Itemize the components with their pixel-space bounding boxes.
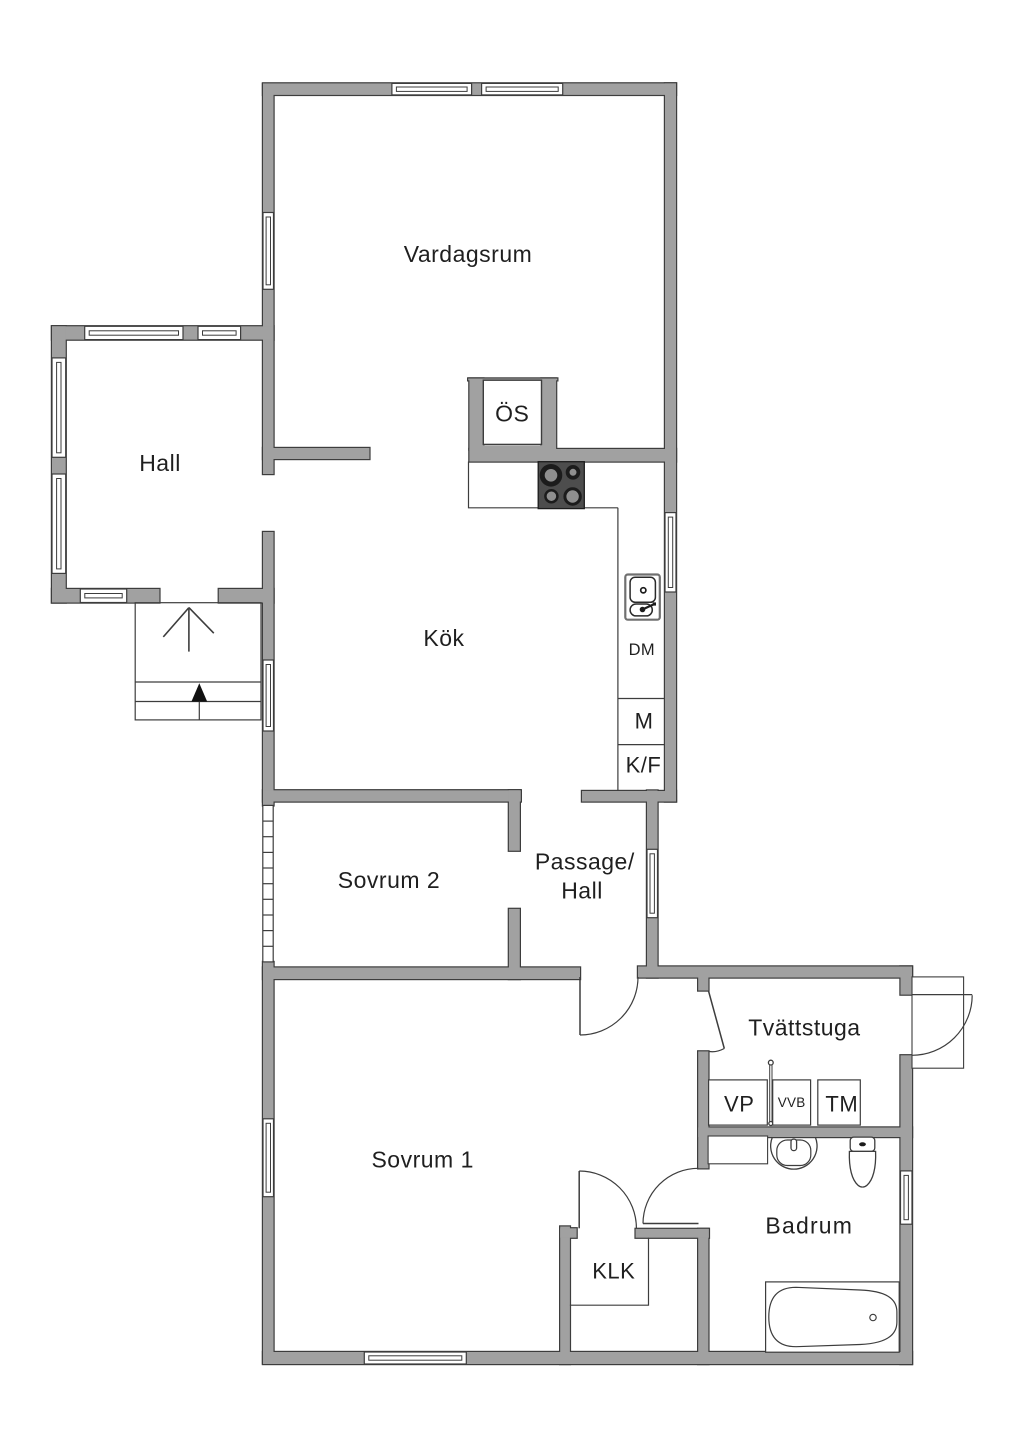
svg-text:Vardagsrum: Vardagsrum [404, 241, 533, 267]
svg-text:VVB: VVB [778, 1095, 806, 1110]
svg-text:Passage/: Passage/ [535, 849, 635, 875]
svg-text:Sovrum 2: Sovrum 2 [338, 867, 440, 893]
svg-text:Hall: Hall [561, 878, 603, 904]
svg-text:TM: TM [825, 1092, 858, 1117]
svg-text:KLK: KLK [592, 1259, 635, 1284]
svg-text:M: M [635, 709, 654, 734]
svg-text:DM: DM [629, 641, 655, 659]
svg-text:VP: VP [724, 1092, 754, 1117]
svg-text:Kök: Kök [423, 625, 464, 651]
svg-text:ÖS: ÖS [495, 401, 529, 427]
svg-text:Tvättstuga: Tvättstuga [748, 1015, 860, 1041]
svg-text:K/F: K/F [626, 753, 662, 778]
svg-text:Hall: Hall [139, 450, 181, 476]
svg-text:Badrum: Badrum [765, 1213, 853, 1239]
svg-text:Sovrum 1: Sovrum 1 [371, 1147, 473, 1173]
